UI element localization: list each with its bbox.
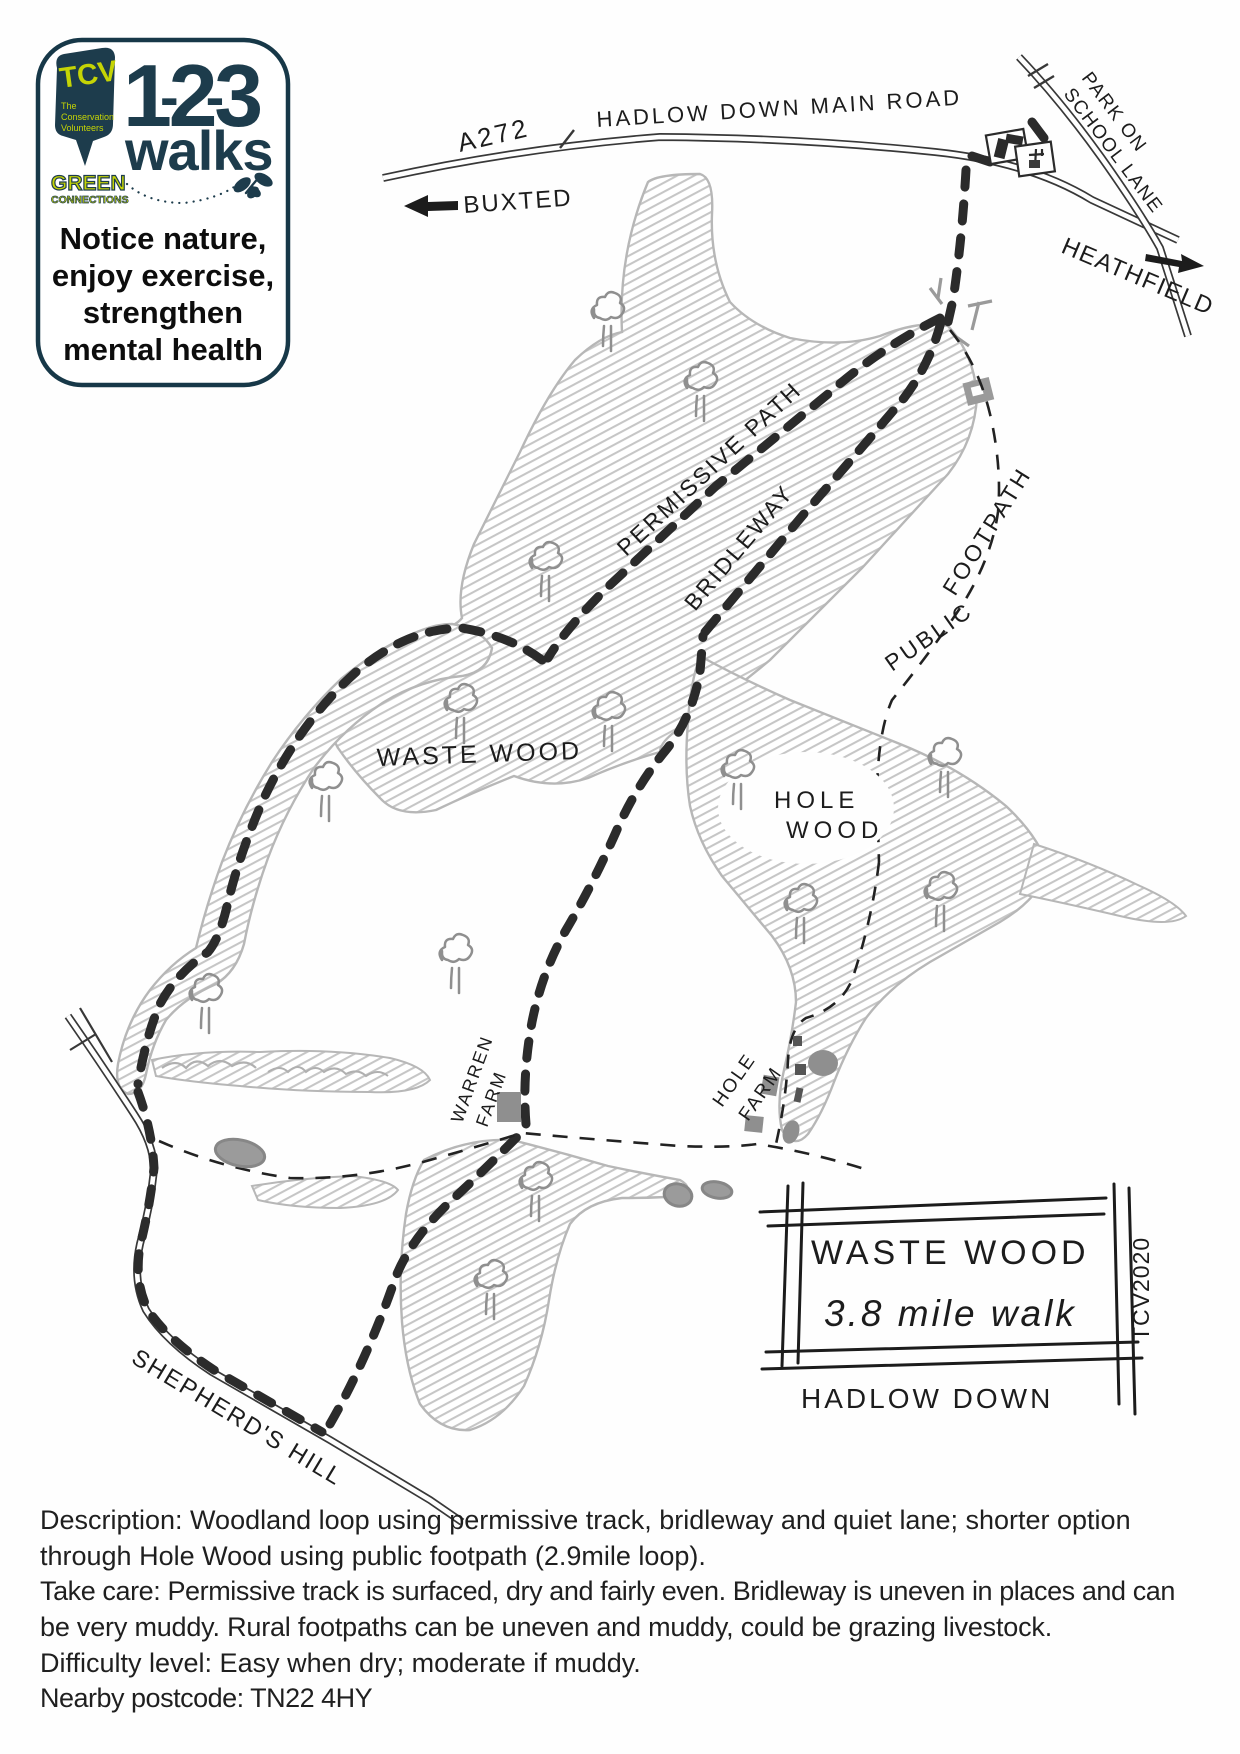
svg-text:HOLE: HOLE xyxy=(774,787,859,814)
svg-text:WASTE WOOD: WASTE WOOD xyxy=(811,1234,1090,1272)
svg-text:CONNECTIONS: CONNECTIONS xyxy=(51,194,129,206)
svg-text:Nearby postcode: TN22 4HY: Nearby postcode: TN22 4HY xyxy=(40,1683,373,1713)
svg-text:Take care: Permissive track is: Take care: Permissive track is surfaced,… xyxy=(40,1576,1175,1606)
svg-text:through Hole Wood using public: through Hole Wood using public footpath … xyxy=(40,1541,706,1571)
svg-text:3.8 mile walk: 3.8 mile walk xyxy=(824,1293,1077,1334)
svg-text:The: The xyxy=(61,101,77,111)
svg-text:Conservation: Conservation xyxy=(61,112,114,122)
svg-text:TCV2020: TCV2020 xyxy=(1128,1237,1154,1341)
svg-text:walks: walks xyxy=(124,119,273,182)
svg-text:Notice nature,: Notice nature, xyxy=(60,221,267,256)
svg-text:Difficulty level: Easy when dr: Difficulty level: Easy when dry; moderat… xyxy=(40,1648,641,1678)
svg-text:HADLOW DOWN: HADLOW DOWN xyxy=(801,1383,1053,1414)
svg-text:strengthen: strengthen xyxy=(83,295,243,330)
svg-text:enjoy exercise,: enjoy exercise, xyxy=(52,258,274,293)
svg-text:mental health: mental health xyxy=(63,332,263,367)
svg-text:Volunteers: Volunteers xyxy=(61,123,104,133)
svg-text:Description: Woodland loop usi: Description: Woodland loop using permiss… xyxy=(40,1505,1131,1535)
svg-text:WOOD: WOOD xyxy=(786,817,883,844)
svg-text:GREEN: GREEN xyxy=(51,172,126,195)
svg-text:be very muddy. Rural footpaths: be very muddy. Rural footpaths can be un… xyxy=(40,1612,1052,1642)
